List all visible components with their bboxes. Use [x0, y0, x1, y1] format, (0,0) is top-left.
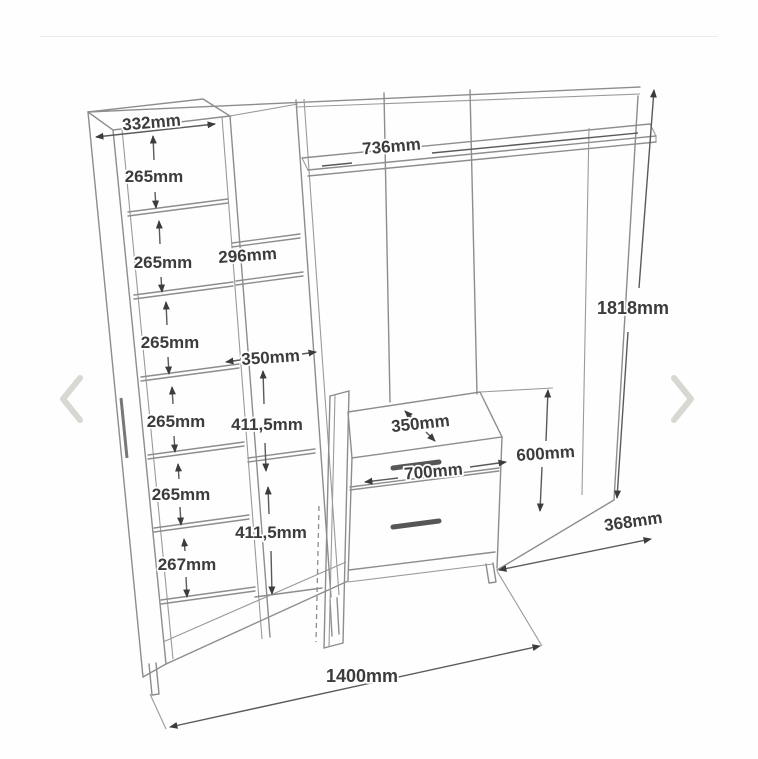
image-carousel-viewport: 332mm 265mm 265mm 265mm 265mm 265mm 267m… [0, 0, 758, 759]
dim-top-shelf-width: 736mm [361, 135, 421, 159]
dim-base-depth-top: 350mm [390, 411, 450, 436]
dim-door-cab-width: 350mm [241, 346, 301, 369]
next-image-button[interactable] [662, 370, 702, 428]
dim-shelf-gap-1: 265mm [125, 167, 184, 186]
dim-middle-width: 296mm [218, 244, 278, 267]
previous-image-button[interactable] [52, 370, 92, 428]
dim-door-gap-upper: 411,5mm [231, 415, 303, 434]
dim-base-height: 600mm [516, 442, 576, 465]
dim-shelf-gap-5: 265mm [152, 485, 211, 504]
dim-shelf-gap-2: 265mm [134, 253, 193, 272]
chevron-left-icon [54, 372, 90, 426]
dim-base-width: 700mm [403, 460, 463, 484]
dim-base-depth: 368mm [603, 508, 664, 535]
dim-door-gap-lower: 411,5mm [235, 523, 307, 542]
chevron-right-icon [664, 372, 700, 426]
drawer-handle-bottom [393, 521, 439, 527]
carousel-top-divider [40, 36, 718, 37]
dim-shelf-gap-3: 265mm [141, 333, 200, 352]
dim-shelf-gap-4: 265mm [147, 412, 206, 431]
furniture-dimension-diagram: 332mm 265mm 265mm 265mm 265mm 265mm 267m… [0, 0, 758, 759]
dimension-labels: 332mm 265mm 265mm 265mm 265mm 265mm 267m… [121, 111, 669, 686]
dim-shelf-gap-6: 267mm [158, 555, 217, 574]
dim-top-width: 332mm [121, 111, 181, 135]
dim-overall-height: 1818mm [597, 298, 669, 318]
dim-overall-width: 1400mm [326, 666, 398, 686]
